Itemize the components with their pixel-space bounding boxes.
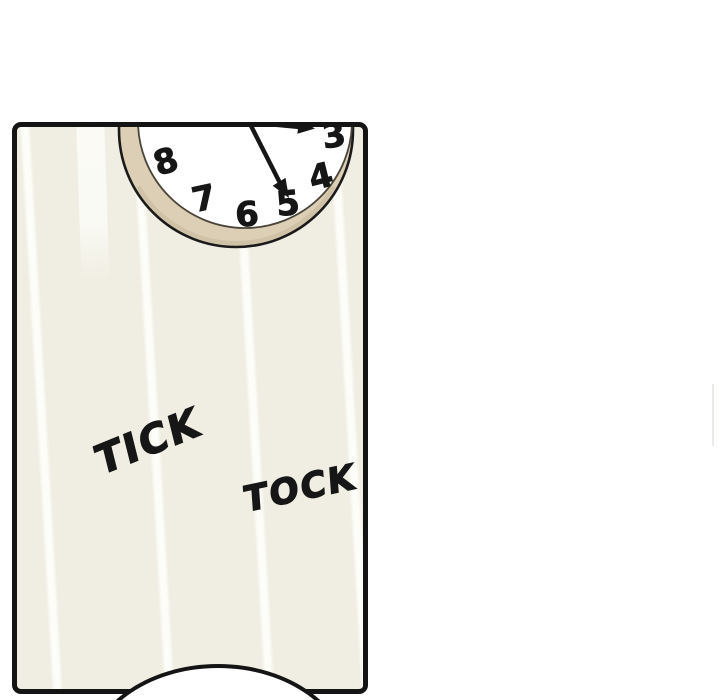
clock-number-3: 3 — [319, 127, 348, 157]
page-edge-artifact — [712, 384, 714, 446]
comic-page: 3 4 5 6 7 8 TICK TOCK — [0, 0, 720, 700]
panel-interior: 3 4 5 6 7 8 TICK TOCK — [17, 127, 363, 689]
clock-number-6: 6 — [234, 194, 260, 236]
comic-panel: 3 4 5 6 7 8 TICK TOCK — [12, 122, 368, 694]
